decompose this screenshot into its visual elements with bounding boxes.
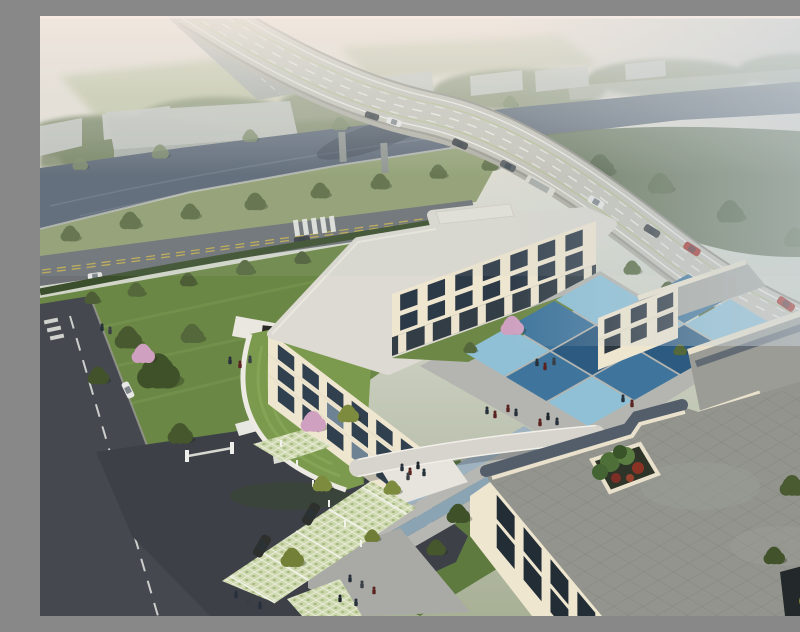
aerial-rendering xyxy=(40,16,800,616)
rendering-canvas xyxy=(40,16,800,616)
frame-border-top xyxy=(40,16,800,19)
